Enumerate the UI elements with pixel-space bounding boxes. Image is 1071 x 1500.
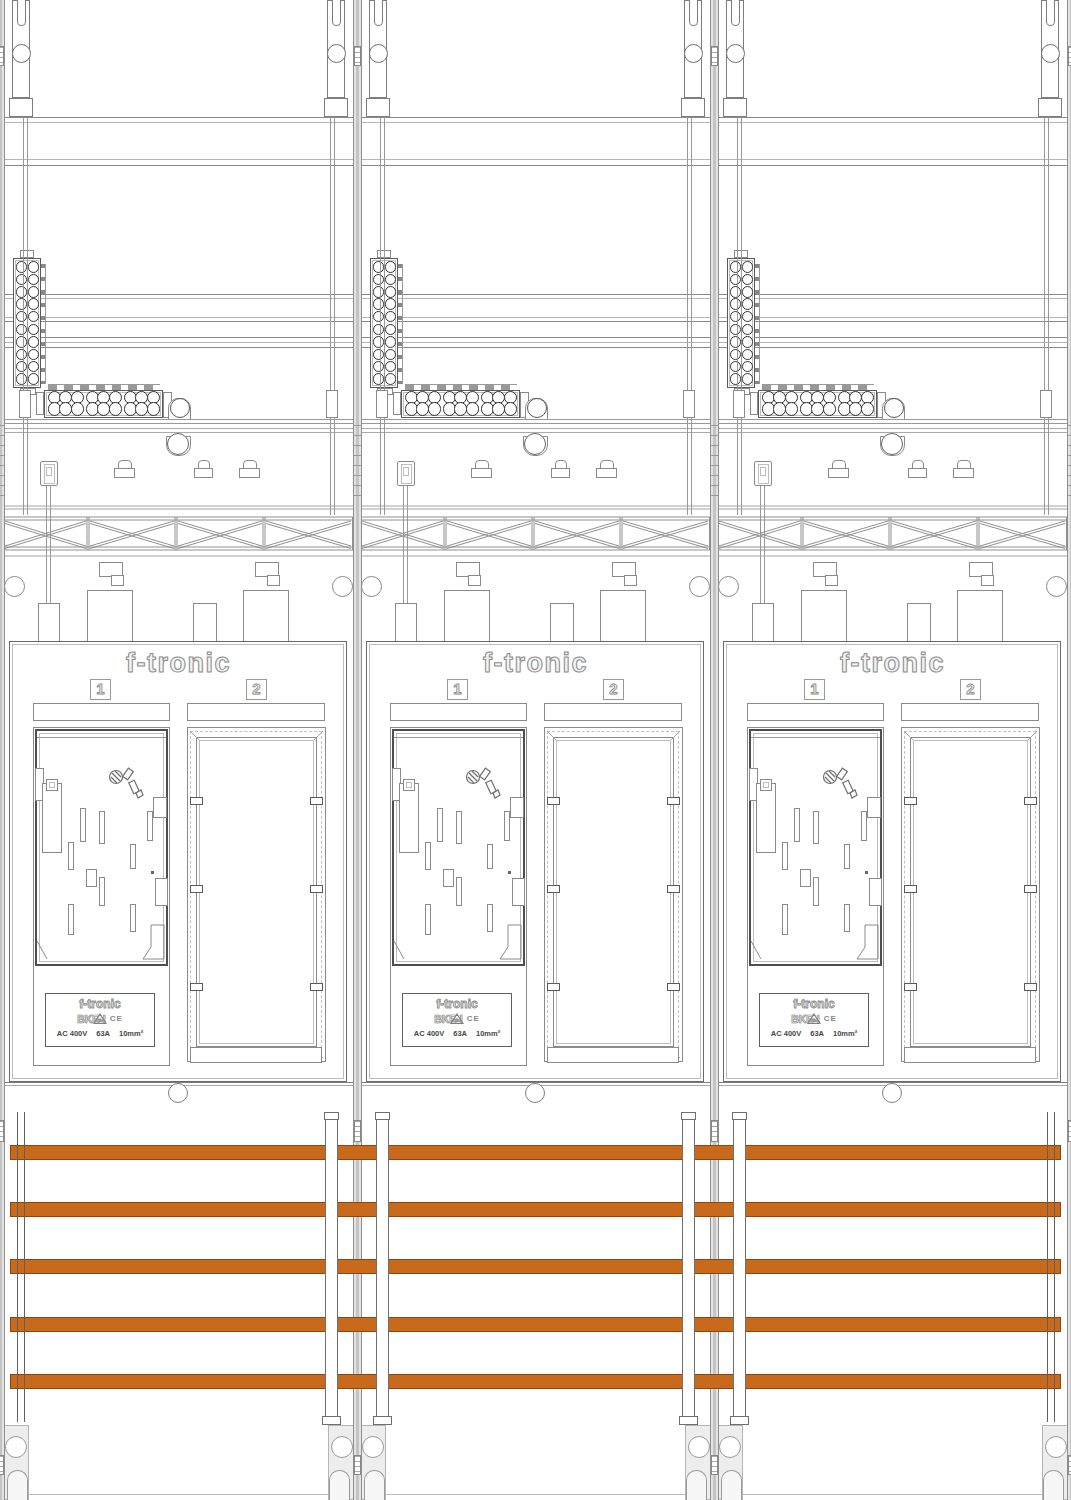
frame-clip (190, 885, 203, 893)
compartment-2-miters (187, 727, 326, 1062)
nameplate-ce-mark: CE (467, 1014, 480, 1023)
clamp-flag-tab (267, 575, 280, 586)
panel-seam-rails (1035, 0, 1071, 1500)
busbar (10, 1259, 1061, 1274)
terminal-circle (147, 402, 160, 415)
support-post (907, 603, 931, 642)
compartment-1-lintel (747, 703, 884, 721)
plate-seal-and-corners (749, 729, 882, 966)
compartment-1-lintel (390, 703, 527, 721)
knockout-circle (882, 1083, 902, 1103)
cable-connector-pin (46, 467, 52, 476)
slot-2-label: 2 (246, 679, 267, 700)
cable-connector-pin (403, 467, 409, 476)
nameplate-current: 63A (96, 1029, 110, 1038)
grommet-circle-upper (884, 398, 904, 418)
support-post (193, 603, 217, 642)
busbar-rail-foot (679, 1416, 698, 1425)
plate-seal-and-corners (392, 729, 525, 966)
nameplate-voltage: AC 400V (414, 1029, 444, 1038)
terminal-circle (109, 402, 122, 415)
support-post (600, 590, 646, 642)
slot-1-label: 1 (447, 679, 468, 700)
busbar-rail-foot (730, 1416, 749, 1425)
busbar-rail (682, 1119, 695, 1417)
frame-clip (190, 983, 203, 991)
top-mounting-beam (0, 117, 357, 166)
clamp-flag-tab (468, 575, 481, 586)
support-post (550, 603, 574, 642)
top-mounting-beam (714, 117, 1071, 166)
middle-mounting-beam (357, 294, 714, 322)
nameplate-wire-size: 10mm² (476, 1029, 500, 1038)
truss-lattice (0, 503, 357, 561)
nameplate-triangle-logo-icon (93, 1013, 107, 1025)
meter-panel: f-tronic 1 2 f-tronic (0, 0, 357, 1500)
panel-seam-rails (678, 0, 750, 1500)
knockout-circle (168, 1083, 188, 1103)
busbar-rail-foot (322, 1416, 341, 1425)
truss-lattice (714, 503, 1071, 561)
plate-seal-and-corners (35, 729, 168, 966)
middle-mounting-beam (714, 294, 1071, 322)
terminal-block-left-bracket (393, 392, 401, 415)
support-post (801, 590, 847, 642)
compartment-2-bottom-bar (190, 1047, 322, 1063)
busbar-rail (733, 1119, 746, 1417)
support-post (752, 603, 774, 642)
frame-clip (904, 983, 917, 991)
clamp-flag-tab (624, 575, 637, 586)
compartment-2-bottom-bar (547, 1047, 679, 1063)
nameplate-ratings: AC 400V 63A 10mm² (760, 1029, 868, 1038)
frame-clip (904, 797, 917, 805)
slot-1-label: 1 (90, 679, 111, 700)
grommet-circle-lower (524, 433, 546, 455)
nameplate-triangle-logo-icon (450, 1013, 464, 1025)
nameplate-ce-mark: CE (110, 1014, 123, 1023)
frame-clip (547, 983, 560, 991)
terminal-circle (823, 402, 836, 415)
nameplate-ratings: AC 400V 63A 10mm² (46, 1029, 154, 1038)
support-post (395, 603, 417, 642)
clamp-flag-tab (981, 575, 994, 586)
nameplate: f-tronic BKE-I CE AC 400V 63A 10mm² (759, 993, 869, 1047)
busbar-rail (376, 1119, 389, 1417)
din-rail-beam (0, 337, 357, 348)
frame-clip (547, 885, 560, 893)
terminal-circle (71, 402, 84, 415)
slot-2-label: 2 (603, 679, 624, 700)
panel-seam-rails (0, 0, 36, 1500)
knockout-circle (525, 1083, 545, 1103)
terminal-block-left-bracket (750, 392, 758, 415)
compartment-2-lintel (187, 703, 325, 721)
frame-clip (190, 797, 203, 805)
compartment-2-lintel (544, 703, 682, 721)
nameplate-current: 63A (453, 1029, 467, 1038)
top-mounting-beam (357, 117, 714, 166)
terminal-circle (428, 402, 441, 415)
terminal-block-clip-rail (755, 264, 760, 384)
din-rail-beam (357, 337, 714, 348)
support-post (243, 590, 289, 642)
terminal-circle (466, 402, 479, 415)
cable-connector-pin (760, 467, 766, 476)
compartment-1-lintel (33, 703, 170, 721)
grommet-circle-upper (170, 398, 190, 418)
support-post (444, 590, 490, 642)
meter-panel: f-tronic 1 2 f-tronic (357, 0, 714, 1500)
grommet-circle-lower (167, 433, 189, 455)
busbar-rail (325, 1119, 338, 1417)
support-post (38, 603, 60, 642)
terminal-circle (504, 402, 517, 415)
brand-logo-text: f-tronic (0, 648, 357, 679)
nameplate: f-tronic BKE-I CE AC 400V 63A 10mm² (402, 993, 512, 1047)
middle-mounting-beam (0, 294, 357, 322)
nameplate-brand: f-tronic (46, 997, 154, 1011)
panel-seam-rails (321, 0, 393, 1500)
frame-clip (547, 797, 560, 805)
truss-lattice (357, 503, 714, 561)
busbar (10, 1374, 1061, 1389)
clamp-flag-tab (111, 575, 124, 586)
meter-panel: f-tronic 1 2 f-tronic (714, 0, 1071, 1500)
brand-logo-text: f-tronic (357, 648, 714, 679)
compartment-2-miters (901, 727, 1040, 1062)
nameplate-wire-size: 10mm² (833, 1029, 857, 1038)
slot-1-label: 1 (804, 679, 825, 700)
din-rail-beam (714, 337, 1071, 348)
terminal-circle (785, 402, 798, 415)
nameplate-wire-size: 10mm² (119, 1029, 143, 1038)
nameplate-voltage: AC 400V (57, 1029, 87, 1038)
compartment-2-lintel (901, 703, 1039, 721)
busbar-rail-foot (373, 1416, 392, 1425)
terminal-block-clip-rail (398, 264, 403, 384)
busbar (10, 1202, 1061, 1217)
meter-cabinet-drawing: f-tronic 1 2 f-tronic (0, 0, 1071, 1500)
grommet-circle-upper (527, 398, 547, 418)
nameplate-triangle-logo-icon (807, 1013, 821, 1025)
nameplate-brand: f-tronic (760, 997, 868, 1011)
terminal-block-left-bracket (36, 392, 44, 415)
brand-logo-text: f-tronic (714, 648, 1071, 679)
support-post (957, 590, 1003, 642)
frame-clip (904, 885, 917, 893)
nameplate-current: 63A (810, 1029, 824, 1038)
compartment-2-bottom-bar (904, 1047, 1036, 1063)
compartment-2-miters (544, 727, 683, 1062)
nameplate-brand: f-tronic (403, 997, 511, 1011)
grommet-circle-lower (881, 433, 903, 455)
terminal-block-clip-rail (41, 264, 46, 384)
support-post (87, 590, 133, 642)
busbar (10, 1317, 1061, 1332)
nameplate-ratings: AC 400V 63A 10mm² (403, 1029, 511, 1038)
nameplate-ce-mark: CE (824, 1014, 837, 1023)
terminal-circle (861, 402, 874, 415)
clamp-flag-tab (825, 575, 838, 586)
slot-2-label: 2 (960, 679, 981, 700)
nameplate-voltage: AC 400V (771, 1029, 801, 1038)
busbar (10, 1145, 1061, 1160)
nameplate: f-tronic BKE-I CE AC 400V 63A 10mm² (45, 993, 155, 1047)
